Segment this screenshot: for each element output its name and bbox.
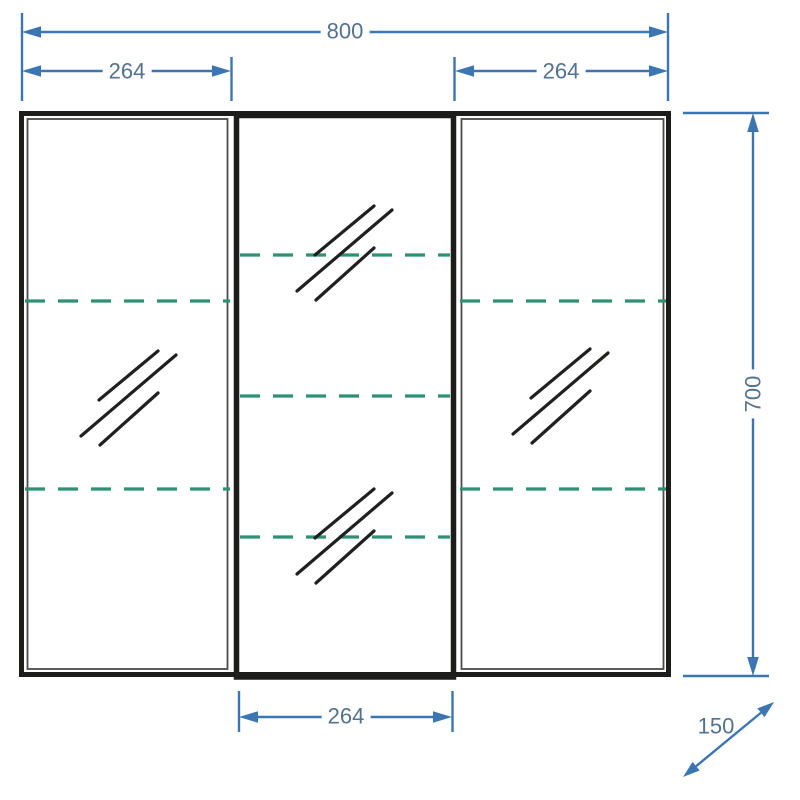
dimension-depth (679, 698, 777, 782)
dim-label-left-door-width: 264 (103, 59, 152, 82)
dim-label-overall-height: 700 (741, 370, 764, 419)
arrow-right-icon (433, 711, 452, 723)
dim-label-depth: 150 (692, 714, 741, 737)
arrow-up-icon (747, 113, 759, 132)
arrow-left-icon (455, 65, 474, 77)
arrow-left-icon (22, 65, 41, 77)
dim-label-middle-door-width: 264 (322, 704, 371, 727)
arrow-down-icon (747, 657, 759, 676)
arrow-right-icon (212, 65, 231, 77)
dim-label-overall-width: 800 (321, 19, 370, 42)
arrow-right-icon (649, 26, 668, 38)
arrow-left-icon (22, 26, 41, 38)
arrow-left-icon (239, 711, 258, 723)
cabinet-outer-frame (22, 114, 669, 675)
arrow-right-icon (649, 65, 668, 77)
cabinet-drawing-canvas (0, 0, 800, 800)
technical-drawing-page: www.aquamir.ru (0, 0, 800, 800)
dim-label-right-door-width: 264 (537, 59, 586, 82)
